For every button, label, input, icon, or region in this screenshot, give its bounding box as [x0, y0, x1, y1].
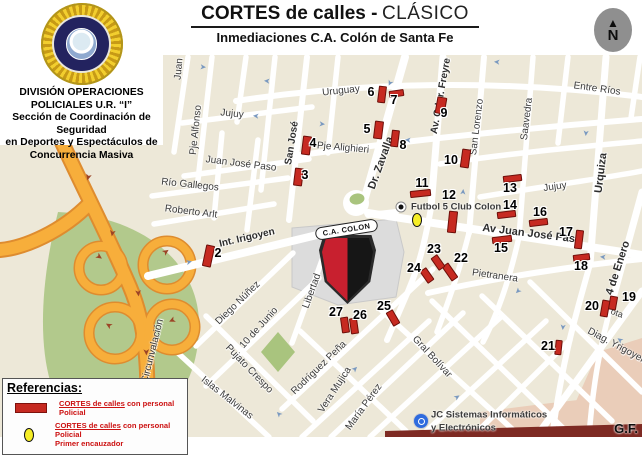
closure-marker-number: 19 [622, 290, 636, 304]
credit-initials: G.F. [614, 421, 638, 436]
closure-marker-bar [529, 218, 549, 227]
crest-shield [322, 238, 373, 301]
compass-label: N [608, 28, 619, 43]
closure-marker-number: 9 [441, 106, 448, 120]
street-label: Uruguay [322, 84, 361, 99]
page-title: CORTES de calles - CLÁSICO [191, 3, 479, 28]
highway-arrow-icon: ➤ [140, 348, 151, 356]
closure-marker-bar [574, 230, 584, 250]
police-sunburst-badge-icon [41, 3, 123, 85]
org-line: Sección de Coordinación de Seguridad [0, 112, 163, 137]
one-way-arrow-icon: ➤ [512, 285, 523, 296]
highway-arrow-icon: ➤ [106, 228, 118, 237]
legend: Referencias: CORTES de calles con person… [2, 378, 188, 455]
street-label: Entre Ríos [573, 80, 621, 97]
closure-marker-number: 17 [559, 225, 573, 239]
closure-marker-number: 3 [302, 168, 309, 182]
closure-marker-number: 24 [407, 261, 421, 275]
closure-marker-bar [390, 130, 400, 148]
one-way-arrow-icon: ➤ [493, 57, 500, 67]
org-line: DIVISIÓN OPERACIONES [0, 87, 163, 100]
closure-marker-number: 4 [310, 136, 317, 150]
closure-marker-number: 14 [503, 198, 517, 212]
street-label: Pietranera [471, 267, 518, 284]
closure-marker-bar [447, 211, 458, 234]
one-way-arrow-icon: ➤ [599, 252, 606, 262]
street-label: Gral Bolívar [410, 334, 454, 380]
closure-marker-bar [373, 121, 384, 140]
one-way-arrow-icon: ➤ [252, 111, 259, 121]
street-label: María Pérez [344, 382, 385, 433]
street-label: Juan [173, 58, 186, 81]
street-label: Jujuy [543, 180, 568, 194]
org-line: POLICIALES U.R. “I” [0, 100, 163, 113]
closure-marker-bar [410, 189, 432, 198]
header: CORTES de calles - CLÁSICO Inmediaciones… [150, 3, 520, 45]
sidebar: DIVISIÓN OPERACIONES POLICIALES U.R. “I”… [0, 0, 163, 145]
poi-label: JC Sistemas Informáticos [431, 410, 547, 421]
closure-marker-number: 5 [364, 122, 371, 136]
stadium-crest: C.A. COLON [318, 220, 378, 306]
org-line: en Deportes y Espectáculos de [0, 137, 163, 150]
compass: ▲ N [594, 8, 632, 52]
highway-arrow-icon: ➤ [160, 245, 172, 258]
street-label: San José [283, 120, 301, 165]
closure-marker-number: 2 [215, 246, 222, 260]
legend-title: Referencias: [7, 381, 183, 395]
legend-item-label: CORTES de calles con personal Policial [59, 399, 183, 417]
closure-marker-bar [554, 340, 563, 356]
street-label: Saavedra [519, 97, 535, 141]
closure-marker-number: 18 [574, 259, 588, 273]
legend-item-label: CORTES de calles con personal PolicialPr… [55, 421, 183, 448]
one-way-arrow-icon: ➤ [318, 119, 325, 129]
one-way-arrow-icon: ➤ [458, 188, 468, 195]
closure-marker-bar [460, 148, 472, 168]
one-way-arrow-icon: ➤ [452, 391, 463, 402]
street-label: Diag. Yrigoyen [586, 326, 642, 366]
one-way-arrow-icon: ➤ [558, 323, 568, 330]
one-way-arrow-icon: ➤ [199, 62, 206, 72]
closure-marker-number: 22 [454, 251, 468, 265]
closure-marker-number: 26 [353, 308, 367, 322]
closure-marker-number: 11 [415, 176, 428, 190]
street-label: Jujuy [220, 107, 244, 120]
closure-marker-bar [202, 244, 215, 267]
street-label: Islas Malvinas [199, 374, 255, 421]
closure-marker-number: 6 [368, 85, 375, 99]
highway-arrow-icon: ➤ [82, 172, 95, 182]
north-arrow-icon: ▲ [607, 18, 619, 28]
closure-marker-bar [419, 267, 434, 284]
one-way-arrow-icon: ➤ [404, 135, 411, 145]
page-subtitle: Inmediaciones C.A. Colón de Santa Fe [150, 30, 520, 45]
street-label: San Lorenzo [468, 98, 486, 156]
yellow-oval-icon [24, 428, 34, 442]
one-way-arrow-icon: ➤ [273, 408, 284, 419]
highway-arrow-icon: ➤ [93, 250, 105, 263]
closure-marker-number: 12 [442, 188, 456, 202]
street-label: Juan José Paso [205, 154, 277, 174]
closure-marker-number: 13 [503, 181, 517, 195]
street-label: Río Gallegos [161, 177, 220, 194]
red-bar-icon [15, 403, 47, 413]
closure-marker-number: 20 [585, 299, 599, 313]
street-label: Roberto Arlt [164, 203, 218, 220]
legend-item-closure: CORTES de calles con personal Policial [7, 399, 183, 417]
closure-marker-number: 7 [391, 93, 398, 107]
street-label: Pujato Crespo [223, 342, 275, 395]
title-light: CLÁSICO [382, 3, 469, 24]
encauzador-marker [412, 213, 422, 227]
closure-marker-number: 27 [329, 305, 343, 319]
legend-item-encauzador: CORTES de calles con personal PolicialPr… [7, 421, 183, 448]
highway-arrow-icon: ➤ [132, 289, 144, 297]
poi-label: Futbol 5 Club Colon [411, 202, 501, 213]
street-label: Pje Alighieri [316, 140, 369, 156]
one-way-arrow-icon: ➤ [185, 257, 194, 267]
closure-marker-number: 23 [427, 242, 441, 256]
closure-marker-number: 10 [444, 153, 458, 167]
street-label: 4 de Enero [604, 239, 633, 296]
one-way-arrow-icon: ➤ [263, 76, 270, 86]
highway-arrow-icon: ➤ [103, 318, 115, 331]
dot-poi [396, 202, 407, 213]
closure-marker-number: 25 [377, 299, 391, 313]
poi-label: y Electrónicos [431, 423, 496, 434]
street-label: Int. Irigoyen [218, 226, 276, 249]
title-bold: CORTES de calles - [201, 3, 377, 24]
street-label: 10 de Junio [238, 305, 281, 351]
blue-circle-poi [414, 414, 428, 428]
closure-marker-number: 16 [533, 205, 547, 219]
one-way-arrow-icon: ➤ [581, 129, 591, 136]
closure-marker-number: 15 [494, 241, 508, 255]
street-label: Urquiza [593, 152, 610, 194]
street-label: Pje Alfonso [188, 105, 204, 156]
highway-arrow-icon: ➤ [166, 313, 177, 326]
street-label: Diego Núñez [213, 279, 262, 327]
closure-marker-number: 21 [541, 339, 555, 353]
closure-marker-bar [377, 86, 387, 104]
org-line: Concurrencia Masiva [0, 150, 163, 163]
